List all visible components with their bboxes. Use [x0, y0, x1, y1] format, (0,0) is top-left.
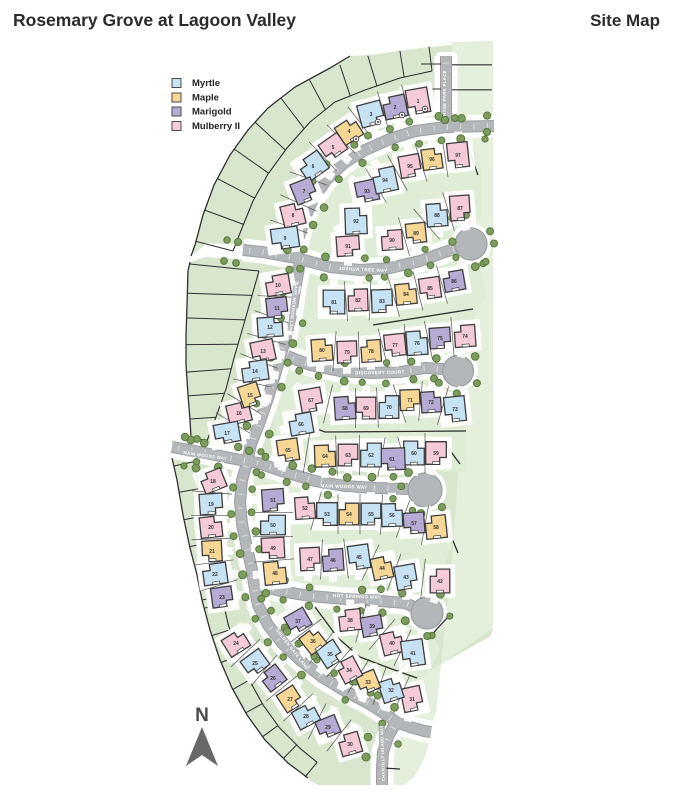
svg-text:65: 65 [285, 448, 291, 454]
svg-text:72: 72 [428, 400, 434, 406]
svg-text:84: 84 [403, 292, 409, 298]
svg-text:Marigold: Marigold [192, 107, 232, 118]
svg-text:79: 79 [344, 350, 350, 356]
svg-text:82: 82 [355, 298, 361, 304]
svg-text:52: 52 [302, 506, 308, 512]
svg-text:86: 86 [451, 279, 457, 285]
svg-text:88: 88 [434, 213, 440, 219]
svg-text:17: 17 [224, 431, 230, 437]
svg-text:34: 34 [346, 668, 352, 674]
svg-text:16: 16 [236, 411, 242, 417]
svg-text:37: 37 [295, 619, 301, 625]
svg-text:81: 81 [331, 300, 337, 306]
svg-text:9: 9 [284, 236, 287, 242]
svg-text:24: 24 [233, 641, 239, 647]
svg-text:DISCOVERY COURT: DISCOVERY COURT [355, 370, 405, 376]
svg-text:90: 90 [389, 238, 395, 244]
svg-text:32: 32 [388, 688, 394, 694]
svg-text:38: 38 [347, 618, 353, 624]
svg-text:41: 41 [410, 651, 416, 657]
svg-text:Maple: Maple [192, 93, 219, 104]
svg-text:5: 5 [332, 145, 335, 151]
svg-text:57: 57 [411, 521, 417, 527]
svg-text:36: 36 [310, 639, 316, 645]
svg-text:12: 12 [267, 325, 273, 331]
svg-text:75: 75 [437, 336, 443, 342]
svg-text:33: 33 [365, 680, 371, 686]
svg-text:96: 96 [429, 157, 435, 163]
svg-text:78: 78 [368, 349, 374, 355]
svg-text:60: 60 [411, 451, 417, 457]
svg-text:68: 68 [342, 406, 348, 412]
svg-text:91: 91 [345, 244, 351, 250]
svg-text:53: 53 [324, 512, 330, 518]
svg-text:45: 45 [356, 555, 362, 561]
svg-text:13: 13 [260, 349, 266, 355]
svg-text:35: 35 [327, 652, 333, 658]
svg-text:76: 76 [414, 341, 420, 347]
svg-text:49: 49 [270, 546, 276, 552]
svg-text:93: 93 [364, 189, 370, 195]
svg-text:67: 67 [308, 398, 314, 404]
svg-text:2: 2 [394, 105, 397, 111]
svg-text:14: 14 [252, 369, 258, 375]
svg-text:26: 26 [270, 676, 276, 682]
svg-text:74: 74 [462, 334, 468, 340]
svg-text:69: 69 [363, 406, 369, 412]
svg-text:6: 6 [312, 164, 315, 170]
svg-text:70: 70 [386, 405, 392, 411]
svg-text:Site Map: Site Map [590, 11, 660, 30]
svg-text:62: 62 [368, 453, 374, 459]
svg-text:59: 59 [433, 451, 439, 457]
svg-text:56: 56 [389, 513, 395, 519]
svg-text:39: 39 [369, 624, 375, 630]
svg-text:28: 28 [303, 714, 309, 720]
svg-text:54: 54 [346, 512, 352, 518]
svg-text:58: 58 [433, 525, 439, 531]
svg-text:29: 29 [325, 725, 331, 731]
svg-text:N: N [195, 705, 209, 726]
svg-text:30: 30 [347, 742, 353, 748]
svg-text:7: 7 [303, 189, 306, 195]
svg-text:44: 44 [379, 566, 385, 572]
svg-text:25: 25 [252, 661, 258, 667]
svg-text:89: 89 [413, 231, 419, 237]
svg-text:22: 22 [212, 572, 218, 578]
svg-text:66: 66 [298, 422, 304, 428]
svg-text:63: 63 [345, 453, 351, 459]
svg-text:64: 64 [322, 454, 328, 460]
svg-text:92: 92 [353, 219, 359, 225]
svg-text:Myrtle: Myrtle [192, 78, 220, 89]
svg-text:3: 3 [370, 112, 373, 118]
svg-text:80: 80 [319, 348, 325, 354]
svg-text:46: 46 [330, 558, 336, 564]
svg-text:4: 4 [348, 129, 351, 135]
svg-text:47: 47 [307, 557, 313, 563]
svg-text:23: 23 [219, 595, 225, 601]
svg-text:87: 87 [457, 206, 463, 212]
svg-text:51: 51 [270, 498, 276, 504]
svg-text:Mulberry II: Mulberry II [192, 121, 240, 132]
svg-text:27: 27 [287, 697, 293, 703]
svg-text:94: 94 [382, 178, 388, 184]
svg-text:42: 42 [437, 579, 443, 585]
svg-text:31: 31 [409, 697, 415, 703]
svg-text:15: 15 [247, 393, 253, 399]
svg-text:21: 21 [209, 549, 215, 555]
svg-text:95: 95 [407, 164, 413, 170]
svg-text:20: 20 [208, 525, 214, 531]
svg-text:19: 19 [208, 502, 214, 508]
svg-text:97: 97 [455, 153, 461, 159]
svg-text:1: 1 [417, 99, 420, 105]
svg-text:40: 40 [389, 641, 395, 647]
svg-text:18: 18 [210, 479, 216, 485]
svg-text:10: 10 [275, 283, 281, 289]
svg-text:Rosemary Grove at Lagoon Valle: Rosemary Grove at Lagoon Valley [13, 10, 296, 30]
svg-text:50: 50 [270, 523, 276, 529]
svg-text:8: 8 [292, 213, 295, 219]
svg-text:77: 77 [392, 343, 398, 349]
svg-text:55: 55 [368, 512, 374, 518]
svg-text:HYDE PARK PLACE: HYDE PARK PLACE [442, 70, 447, 116]
svg-text:71: 71 [407, 398, 413, 404]
svg-text:43: 43 [403, 575, 409, 581]
svg-text:48: 48 [272, 571, 278, 577]
svg-text:73: 73 [452, 407, 458, 413]
svg-text:85: 85 [427, 286, 433, 292]
svg-text:61: 61 [389, 457, 395, 463]
svg-text:11: 11 [274, 306, 280, 312]
svg-text:83: 83 [379, 299, 385, 305]
